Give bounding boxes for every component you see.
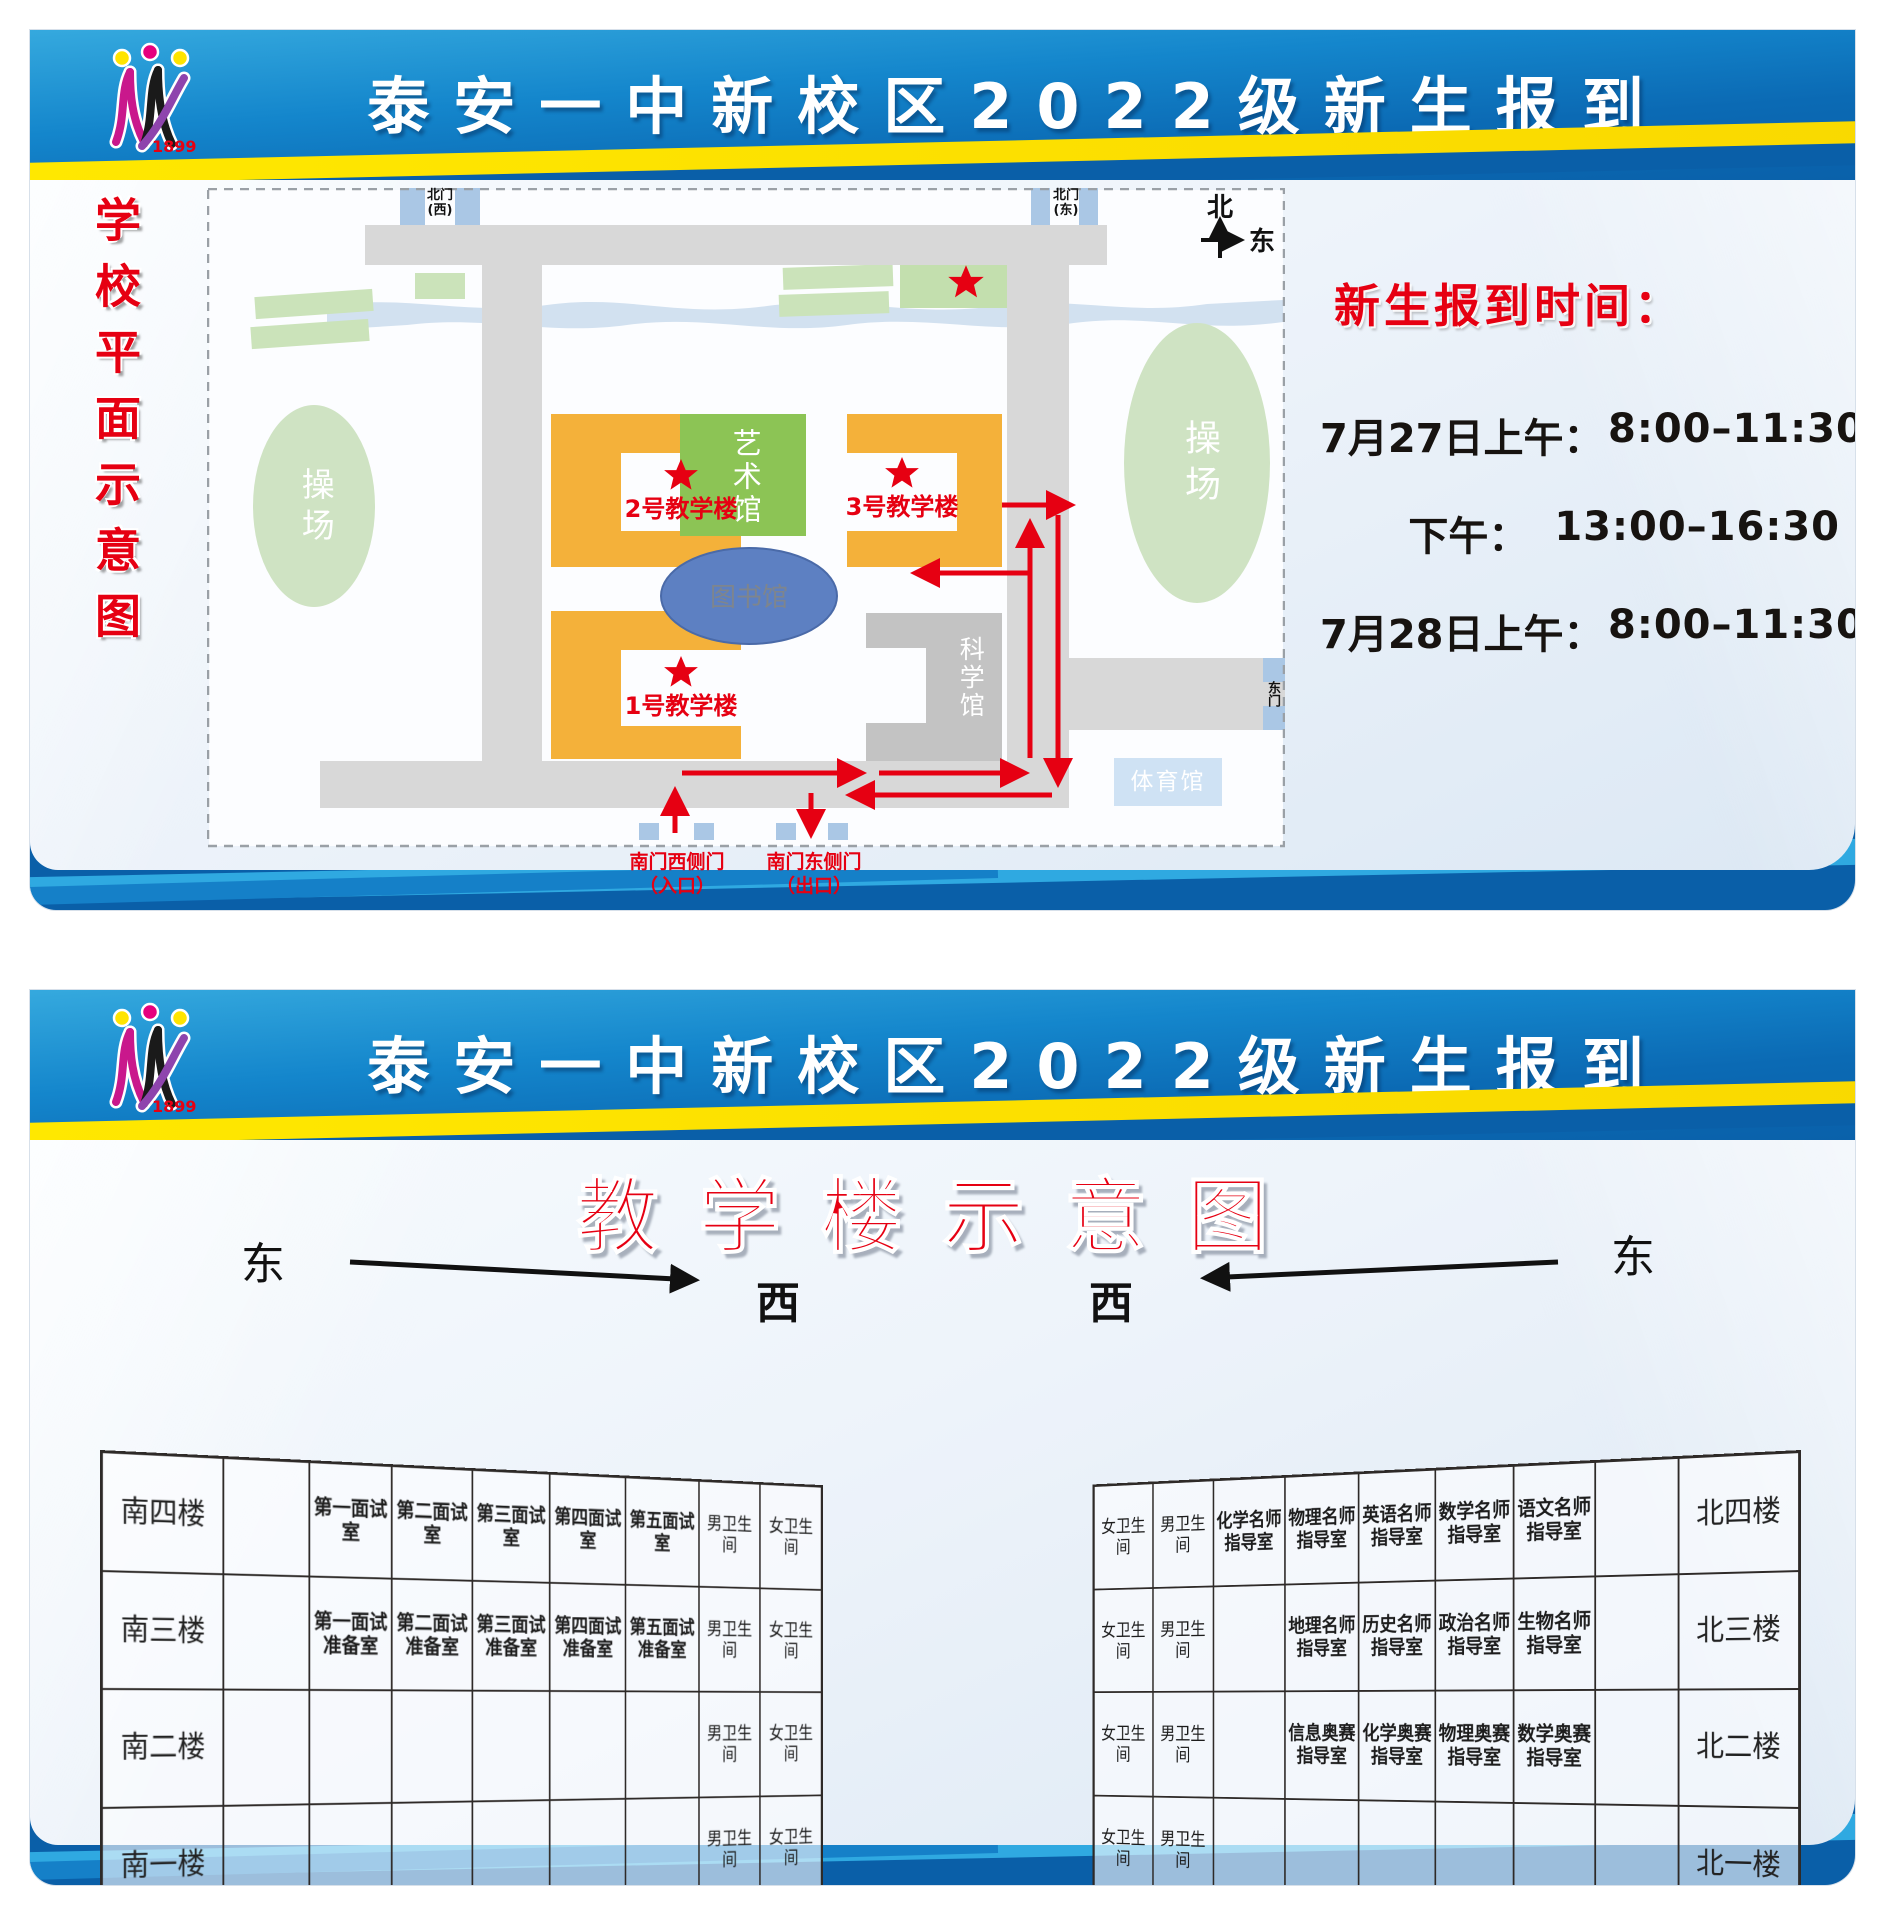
- cell-r4-c6: [1436, 1802, 1515, 1885]
- science-hall-label: 科学馆: [955, 630, 986, 726]
- cell-r2-c9: 北三楼: [1679, 1572, 1798, 1691]
- cell-r2-c8: 男卫生间: [699, 1587, 760, 1693]
- logo-year: 1899: [152, 137, 197, 156]
- playground-west-label: 操场: [295, 450, 336, 566]
- gate-north-east: 北门 (东): [1047, 189, 1085, 219]
- cell-r3-c9: 女卫生间: [761, 1693, 821, 1797]
- cell-r4-c5: [1360, 1801, 1436, 1885]
- cell-r3-c2: 男卫生间: [1154, 1692, 1214, 1798]
- gate-east-label: 东门: [1264, 680, 1279, 708]
- cell-r4-c2: [224, 1805, 310, 1885]
- cell-r4-c4: [1286, 1799, 1360, 1885]
- cell-r1-c8: [1596, 1459, 1680, 1577]
- cell-r2-c6: 第四面试准备室: [551, 1583, 626, 1692]
- cell-r3-c2: [224, 1691, 310, 1807]
- schedule-time: 8:00–11:30: [1608, 406, 1855, 464]
- cell-r3-c9: 北二楼: [1679, 1690, 1798, 1808]
- cell-r1-c2: 男卫生间: [1154, 1481, 1214, 1588]
- board-title: 泰安一中新校区2022级新生报到: [230, 56, 1805, 146]
- board-title: 泰安一中新校区2022级新生报到: [230, 1016, 1805, 1106]
- board-header: 1899 泰安一中新校区2022级新生报到: [30, 30, 1855, 180]
- schedule-label: 下午：: [1320, 504, 1528, 562]
- cell-r4-c3: [1214, 1798, 1286, 1885]
- board-header: 1899 泰安一中新校区2022级新生报到: [30, 990, 1855, 1140]
- schedule-label: 7月27日上午：: [1320, 406, 1582, 464]
- gate-south-east-label: 南门东侧门 （出口）: [739, 851, 889, 899]
- direction-east-right: 东: [1611, 1221, 1655, 1285]
- gate-label-line: （出口）: [776, 875, 852, 897]
- cell-r2-c3: 第一面试准备室: [310, 1577, 393, 1691]
- cell-r3-c4: [393, 1691, 473, 1803]
- cell-r2-c6: 政治名师指导室: [1436, 1579, 1515, 1692]
- gymnasium-label: 体育馆: [1114, 768, 1222, 797]
- library-label: 图书馆: [689, 582, 809, 615]
- cell-r2-c1: 南三楼: [103, 1572, 224, 1691]
- cell-r1-c6: 数学名师指导室: [1436, 1467, 1515, 1581]
- cell-r3-c4: 信息奥赛指导室: [1286, 1692, 1360, 1801]
- gate-south-west-label: 南门西侧门 （入口）: [602, 851, 752, 899]
- schedule-row: 下午： 13:00–16:30: [1320, 504, 1840, 562]
- cell-r2-c9: 女卫生间: [761, 1589, 821, 1693]
- cell-r4-c9: 女卫生间: [761, 1796, 821, 1885]
- cell-r1-c5: 第三面试室: [473, 1471, 551, 1583]
- cell-r1-c4: 物理名师指导室: [1286, 1474, 1360, 1585]
- cell-r3-c3: [1214, 1692, 1286, 1799]
- poster-canvas: { "shared": { "header_title": "泰安一中新校区20…: [0, 0, 1885, 1920]
- logo-head-dot: [114, 50, 130, 66]
- gate-label-line: 南门东侧门: [766, 851, 861, 873]
- gate-label-line: 北门: [427, 188, 453, 203]
- cell-r1-c8: 男卫生间: [699, 1482, 760, 1589]
- cell-r3-c3: [310, 1691, 393, 1805]
- logo-year: 1899: [152, 1097, 197, 1116]
- gate-label-line: 北门: [1053, 188, 1079, 203]
- playground-east-label: 操场: [1177, 400, 1222, 530]
- gate-north-west: 北门 (西): [421, 189, 459, 219]
- north-building-table: 女卫生间男卫生间化学名师指导室物理名师指导室英语名师指导室数学名师指导室语文名师…: [1093, 1450, 1801, 1885]
- schedule-time: 13:00–16:30: [1554, 504, 1840, 562]
- direction-east-left: 东: [241, 1228, 285, 1292]
- direction-west-left: 西: [756, 1267, 800, 1331]
- schedule-row: 7月28日上午： 8:00–11:30: [1320, 602, 1840, 660]
- building-2-label: 2号教学楼: [611, 494, 751, 524]
- cell-r4-c9: 北一楼: [1679, 1806, 1798, 1885]
- gate-label-line: （入口）: [639, 875, 715, 897]
- cell-r3-c5: [473, 1692, 551, 1802]
- schedule-row: 7月27日上午： 8:00–11:30: [1320, 406, 1840, 464]
- teaching-building-board: 1899 泰安一中新校区2022级新生报到 教学楼示意图 东 西 西 东 南四楼…: [30, 990, 1855, 1885]
- building-3-label: 3号教学楼: [832, 492, 972, 522]
- school-logo: 1899: [92, 998, 204, 1116]
- cell-r2-c3: [1214, 1585, 1286, 1693]
- cell-r1-c1: 女卫生间: [1095, 1484, 1154, 1590]
- direction-west-right: 西: [1089, 1267, 1133, 1331]
- cell-r1-c5: 英语名师指导室: [1360, 1471, 1436, 1583]
- cell-r3-c7: [626, 1692, 699, 1799]
- cell-r1-c7: 第五面试室: [626, 1478, 699, 1587]
- schedule-label: 7月28日上午：: [1320, 602, 1582, 660]
- cell-r3-c8: [1596, 1691, 1680, 1807]
- map-side-title: 学校平面示意图: [82, 196, 148, 696]
- cell-r4-c8: [1596, 1805, 1680, 1885]
- cell-r1-c2: [224, 1459, 310, 1577]
- cell-r3-c6: [551, 1692, 626, 1801]
- cell-r2-c2: 男卫生间: [1154, 1587, 1214, 1693]
- cell-r4-c1: 南一楼: [103, 1806, 224, 1885]
- bottom-compass: 西 北: [720, 1882, 880, 1885]
- schedule-time: 8:00–11:30: [1608, 602, 1855, 660]
- cell-r2-c2: [224, 1575, 310, 1691]
- campus-map-board: 1899 泰安一中新校区2022级新生报到 学校平面示意图 新生报到时间： 7月…: [30, 30, 1855, 910]
- gate-label-line: 南门西侧门: [629, 851, 724, 873]
- cell-r3-c1: 南二楼: [103, 1690, 224, 1808]
- cell-r4-c7: [626, 1798, 699, 1885]
- cell-r2-c1: 女卫生间: [1095, 1588, 1154, 1693]
- gate-label-line: (东): [1054, 203, 1079, 218]
- cell-r4-c1: 女卫生间: [1095, 1796, 1154, 1885]
- cell-r3-c1: 女卫生间: [1095, 1693, 1154, 1797]
- cell-r2-c4: 地理名师指导室: [1286, 1583, 1360, 1692]
- compass-west-label: 西: [748, 1878, 775, 1885]
- compass-east-label: 东: [1245, 226, 1279, 259]
- cell-r1-c3: 第一面试室: [310, 1463, 393, 1579]
- cell-r1-c9: 女卫生间: [761, 1485, 821, 1591]
- cell-r4-c2: 男卫生间: [1154, 1797, 1214, 1885]
- cell-r4-c5: [473, 1801, 551, 1885]
- cell-r1-c7: 语文名师指导室: [1515, 1463, 1596, 1579]
- south-building-table: 南四楼第一面试室第二面试室第三面试室第四面试室第五面试室男卫生间女卫生间南三楼第…: [100, 1450, 823, 1885]
- registration-schedule: 新生报到时间： 7月27日上午： 8:00–11:30 下午： 13:00–16…: [1320, 270, 1840, 660]
- cell-r1-c4: 第二面试室: [393, 1467, 473, 1581]
- cell-r2-c5: 第三面试准备室: [473, 1581, 551, 1692]
- cell-r4-c8: 男卫生间: [699, 1797, 760, 1885]
- cell-r3-c5: 化学奥赛指导室: [1360, 1692, 1436, 1803]
- cell-r1-c3: 化学名师指导室: [1214, 1478, 1286, 1587]
- cell-r3-c6: 物理奥赛指导室: [1436, 1691, 1515, 1803]
- panel1-content: 学校平面示意图 新生报到时间： 7月27日上午： 8:00–11:30 下午： …: [30, 180, 1855, 870]
- compass-cross: [720, 1882, 880, 1885]
- schedule-heading: 新生报到时间：: [1334, 270, 1840, 336]
- building-1-label: 1号教学楼: [611, 691, 751, 721]
- cell-r2-c8: [1596, 1575, 1680, 1691]
- cell-r4-c6: [551, 1799, 626, 1885]
- gate-label-line: (西): [428, 203, 453, 218]
- panel2-content: 教学楼示意图 东 西 西 东 南四楼第一面试室第二面试室第三面试室第四面试室第五…: [30, 1140, 1855, 1845]
- cell-r4-c7: [1515, 1803, 1596, 1885]
- cell-r3-c8: 男卫生间: [699, 1693, 760, 1798]
- diagram-title: 教学楼示意图: [30, 1150, 1855, 1269]
- campus-map: 北门 (西) 北门 (东) 北 东 操场 操场 艺术馆 图书馆 科学馆 体育馆 …: [207, 188, 1285, 908]
- cell-r3-c7: 数学奥赛指导室: [1515, 1691, 1596, 1805]
- cell-r1-c9: 北四楼: [1679, 1453, 1798, 1575]
- cell-r4-c3: [310, 1803, 393, 1885]
- cell-r2-c7: 第五面试准备室: [626, 1585, 699, 1692]
- cell-r1-c6: 第四面试室: [551, 1475, 626, 1586]
- school-logo: 1899: [92, 38, 204, 156]
- cell-r4-c4: [393, 1802, 473, 1885]
- cell-r1-c1: 南四楼: [103, 1453, 224, 1575]
- cell-r2-c7: 生物名师指导室: [1515, 1577, 1596, 1691]
- cell-r2-c4: 第二面试准备室: [393, 1579, 473, 1691]
- compass-north-label: 北: [1203, 192, 1237, 225]
- cell-r2-c5: 历史名师指导室: [1360, 1581, 1436, 1692]
